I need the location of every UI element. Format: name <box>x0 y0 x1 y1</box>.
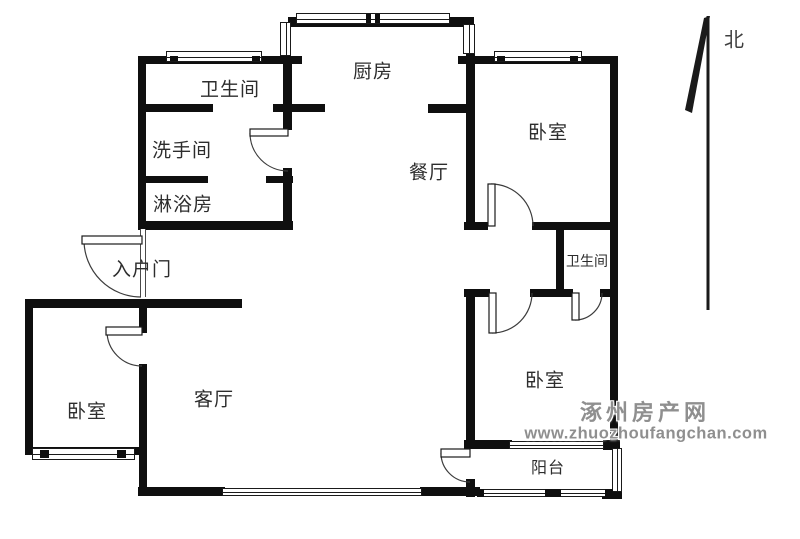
floor-plan: 卫生间 洗手间 淋浴房 厨房 餐厅 卧室 卫生间 入户门 卧室 客厅 卧室 阳台… <box>0 0 800 539</box>
bathroom-ensuite-door <box>572 293 602 320</box>
watermark-site-url: www.zhuozhoufangchan.com <box>524 425 767 444</box>
room-label-bathroom-top: 卫生间 <box>200 75 260 102</box>
room-label-balcony: 阳台 <box>531 454 565 478</box>
room-label-living-room: 客厅 <box>194 385 234 412</box>
balcony-door <box>441 449 470 482</box>
bedroom-southeast-door <box>489 293 532 333</box>
room-label-dining-room: 餐厅 <box>409 158 449 185</box>
compass-north-label: 北 <box>724 24 744 53</box>
room-label-bedroom-west: 卧室 <box>67 397 107 424</box>
room-label-bathroom-ensuite: 卫生间 <box>566 251 608 271</box>
bedroom-west-door <box>106 327 142 366</box>
room-label-shower-room: 淋浴房 <box>153 190 213 217</box>
room-label-kitchen: 厨房 <box>353 57 393 84</box>
room-label-bedroom-southeast: 卧室 <box>525 366 565 393</box>
watermark-site-name: 涿州房产网 <box>580 395 710 427</box>
room-label-entrance: 入户门 <box>112 255 172 282</box>
washroom-door <box>250 129 288 171</box>
room-label-washroom: 洗手间 <box>152 136 212 163</box>
north-arrow-icon <box>672 8 752 318</box>
room-label-bedroom-northeast: 卧室 <box>528 118 568 145</box>
bedroom-northeast-door <box>488 184 533 226</box>
